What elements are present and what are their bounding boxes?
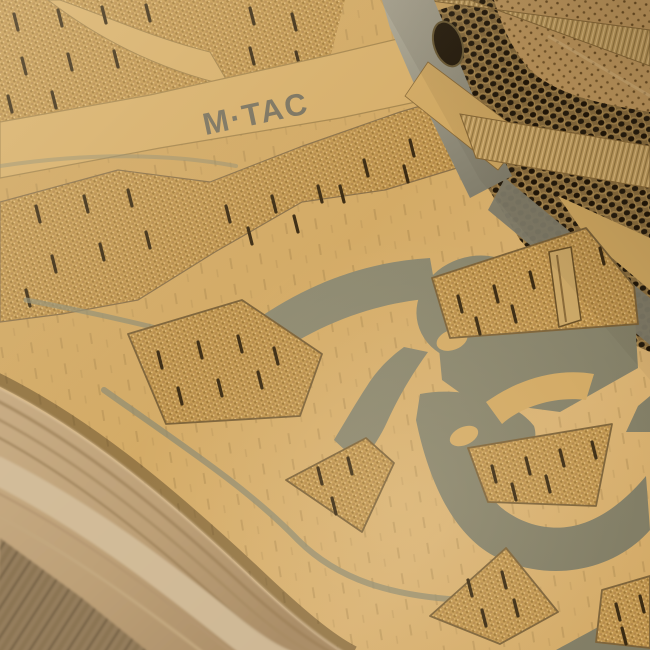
product-photo: M·TAC — [0, 0, 650, 650]
sneaker-macro-scene: M·TAC — [0, 0, 650, 650]
